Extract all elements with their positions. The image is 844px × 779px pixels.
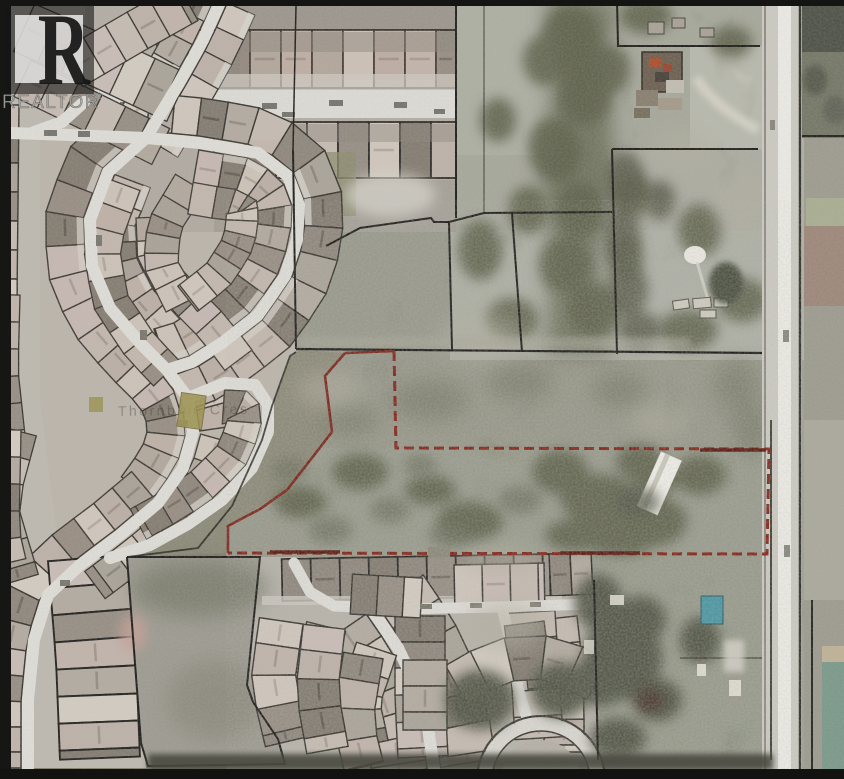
svg-text:REALTOR: REALTOR bbox=[2, 92, 100, 113]
svg-text:®: ® bbox=[96, 91, 103, 101]
